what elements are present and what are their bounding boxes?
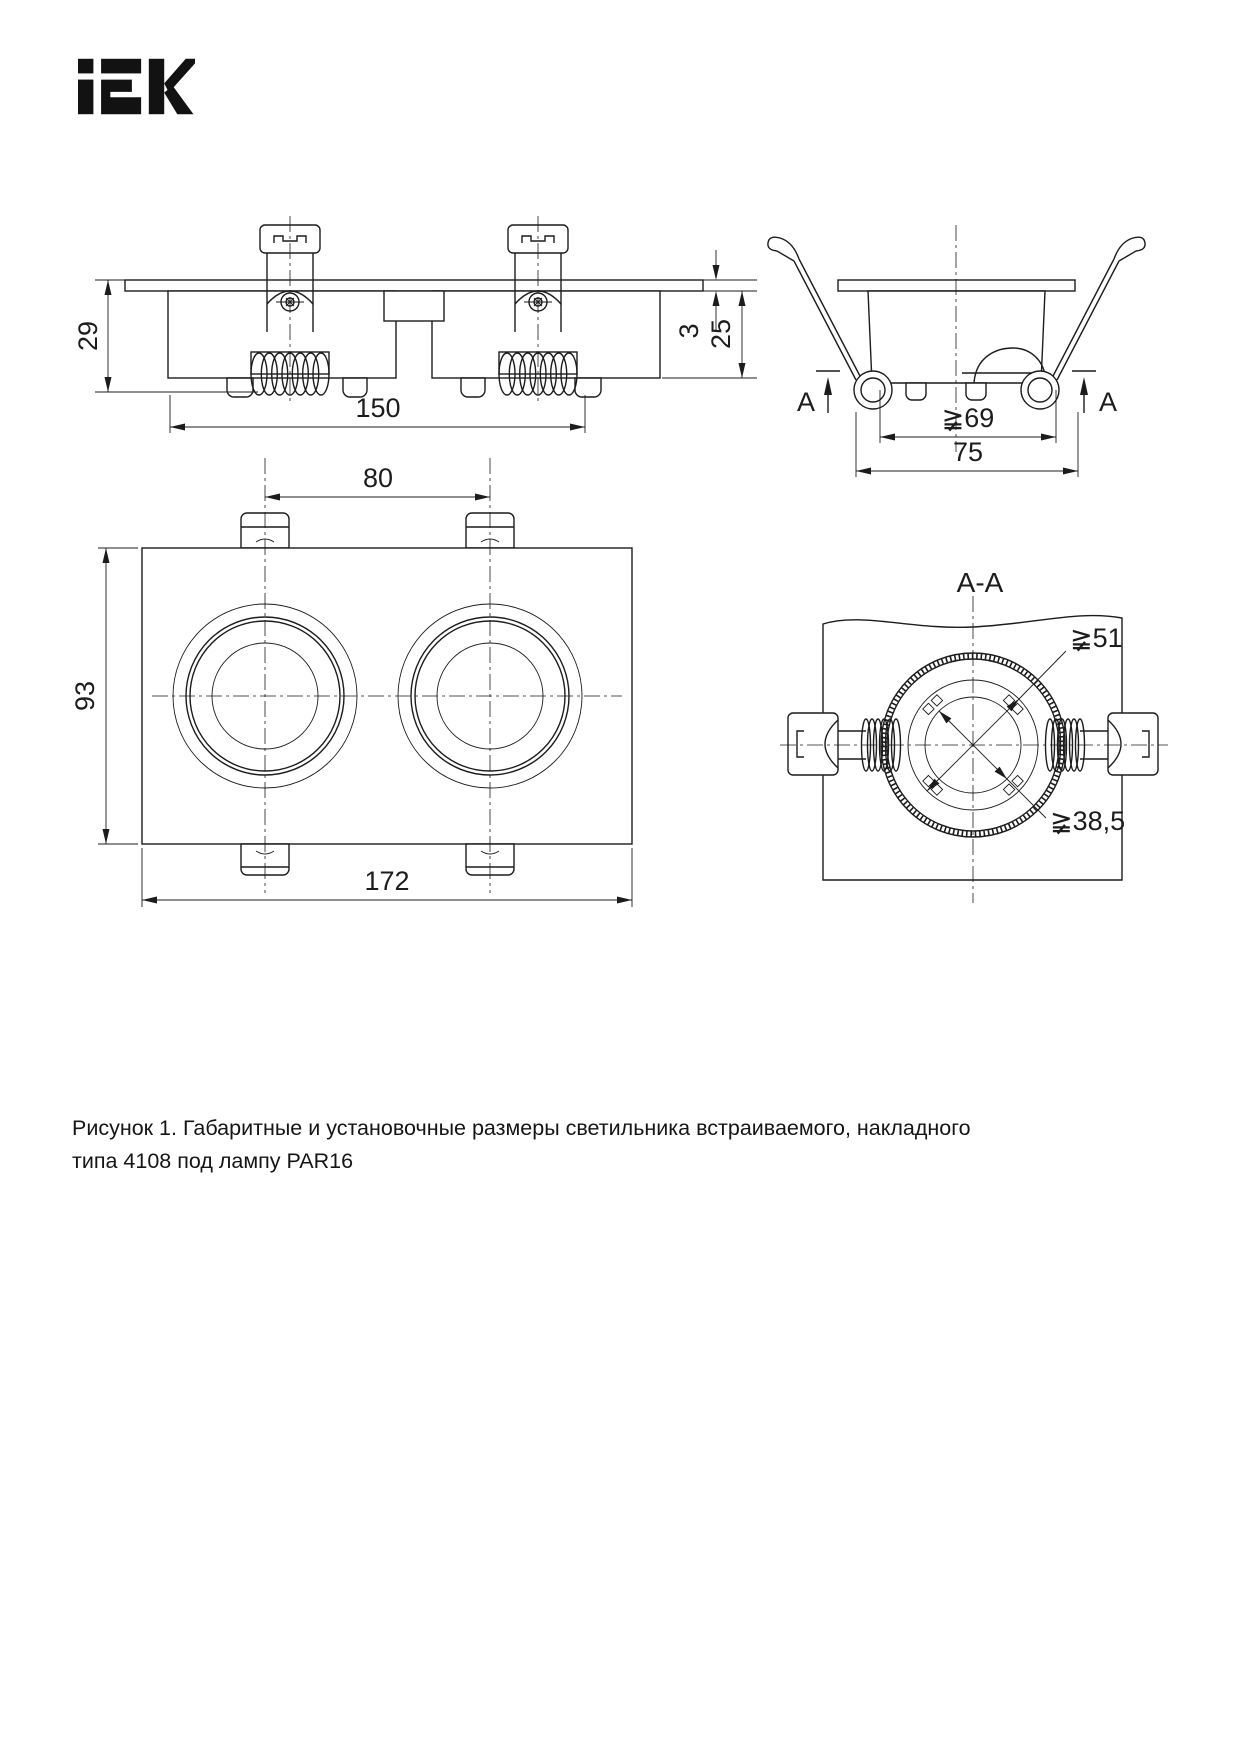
- dim-label: 172: [364, 866, 409, 896]
- bottom-tab: [906, 383, 926, 400]
- caption-line-2: типа 4108 под лампу PAR16: [72, 1145, 1032, 1178]
- drawing-page: { "page": {"background": "#ffffff", "lin…: [0, 0, 1233, 1757]
- section-marker-left: A: [797, 371, 840, 417]
- dim-span-150: 150: [170, 393, 585, 433]
- lamp-body: [868, 291, 1045, 383]
- section-letter: A: [1099, 387, 1117, 417]
- section-title: A-A: [957, 567, 1004, 598]
- clip-cap: [788, 713, 838, 775]
- right-spring-arm: [1052, 237, 1145, 380]
- dim-width-93: 93: [70, 548, 138, 844]
- dim-centers-80: 80: [265, 463, 490, 501]
- technical-drawing: 29 150 3 25: [0, 0, 1233, 960]
- dim-label: 150: [355, 393, 400, 423]
- dim-label: 3: [674, 323, 704, 338]
- dim-label: 25: [706, 319, 736, 349]
- caption-line-1: Рисунок 1. Габаритные и установочные раз…: [72, 1112, 1032, 1145]
- section-marker-right: A: [1072, 371, 1117, 417]
- dim-label: 29: [73, 321, 103, 351]
- dim-label: ≩38,5: [1050, 806, 1125, 836]
- dim-length-172: 172: [142, 848, 632, 907]
- bottom-tab: [966, 383, 986, 400]
- plan-view: 80 93 172: [70, 458, 632, 907]
- front-view: 29 150 3 25: [73, 216, 757, 433]
- left-spring-arm: [768, 237, 861, 380]
- section-view: A-A: [780, 567, 1168, 903]
- side-view: A A ≩69 75: [768, 225, 1145, 477]
- spring-curl: [854, 371, 892, 409]
- figure-caption: Рисунок 1. Габаритные и установочные раз…: [72, 1112, 1032, 1178]
- dim-label: 80: [363, 463, 393, 493]
- trim-plate: [125, 280, 703, 291]
- dim-label: 75: [953, 437, 983, 467]
- clip-cap: [1108, 713, 1158, 775]
- center-bracket: [384, 291, 444, 321]
- dim-label: 93: [70, 681, 100, 711]
- dim-label: ≩69: [942, 403, 995, 433]
- section-letter: A: [797, 387, 815, 417]
- spring-curl: [1021, 371, 1059, 409]
- dim-label: ≩51: [1070, 623, 1123, 653]
- trim-plate: [838, 280, 1075, 291]
